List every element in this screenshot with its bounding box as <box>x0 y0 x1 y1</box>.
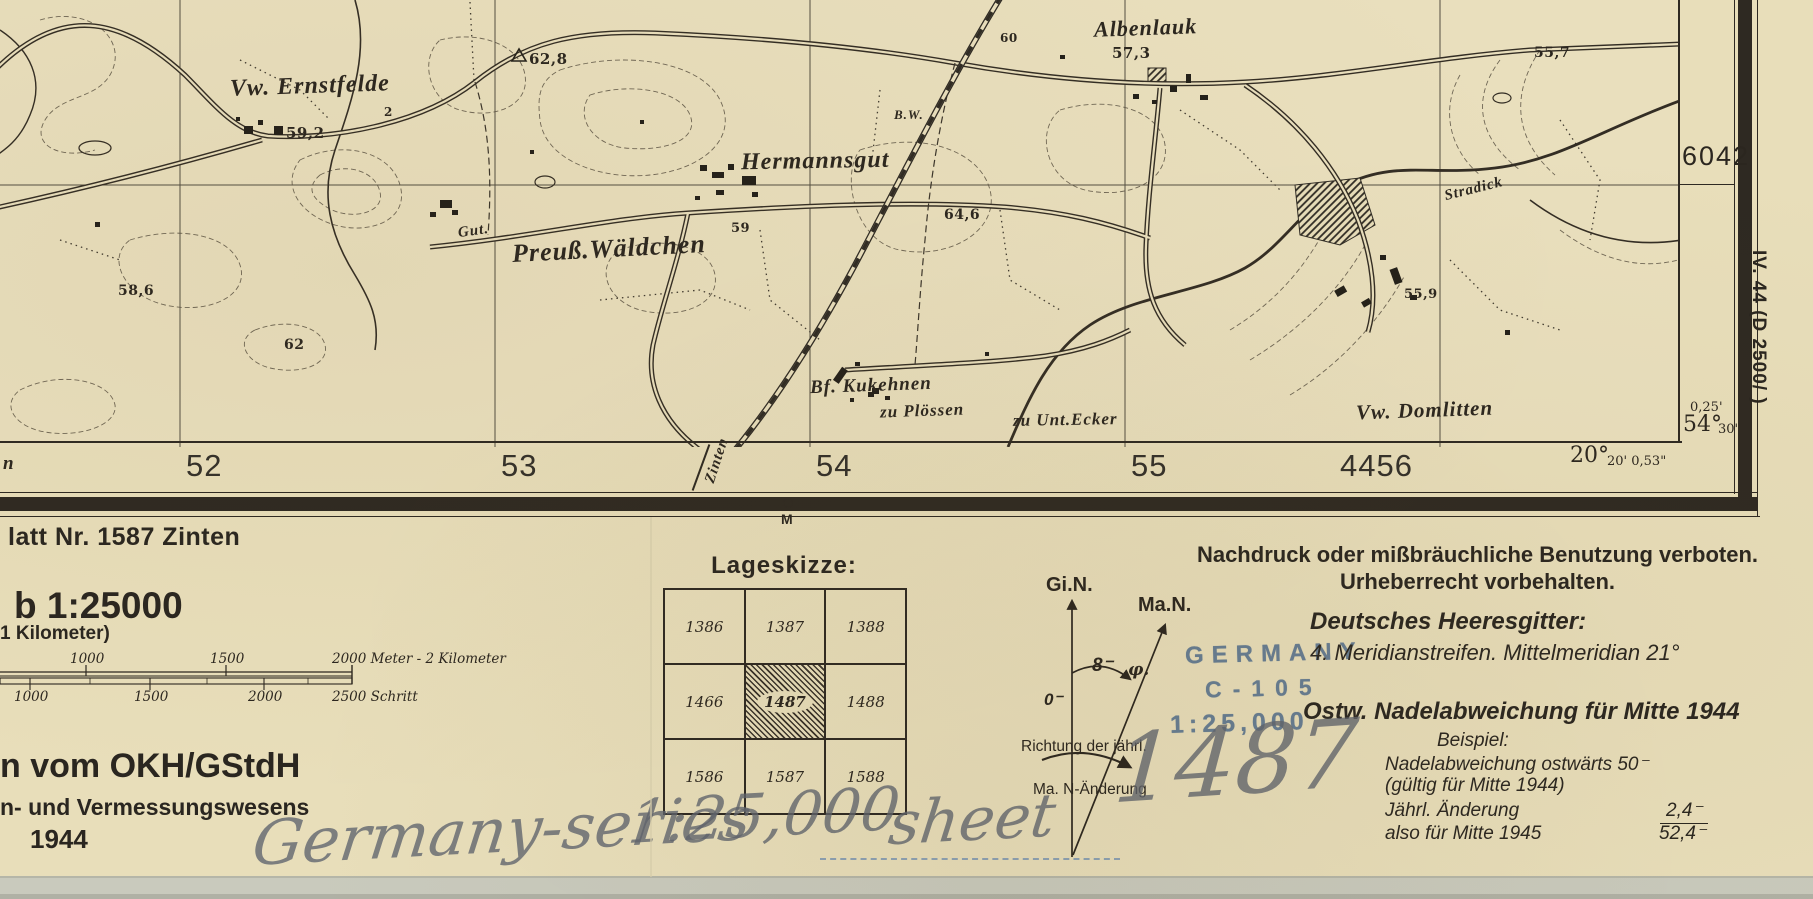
map-label: Hermannsgut <box>741 148 890 175</box>
lageskizze-title: Lageskizze: <box>663 553 905 579</box>
survey-marker-icon <box>783 498 793 508</box>
spot-height: 57,3 <box>1112 46 1151 61</box>
neatline-bottom <box>0 441 1682 443</box>
scale-tick-label: 1000 <box>14 689 49 705</box>
grid-number: 54 <box>816 450 852 481</box>
outer-border-bottom <box>0 516 1760 517</box>
map-label: zu Plössen <box>880 401 965 421</box>
sheet-index-cell: 1466 <box>664 664 745 739</box>
zero-label: 0⁻ <box>1044 690 1064 709</box>
margin-print-code: IV. 44 (D 2500/ ) <box>1747 250 1768 405</box>
grid-number: 4456 <box>1340 450 1413 481</box>
declination-note-title: Ostw. Nadelabweichung für Mitte 1944 <box>1303 698 1740 726</box>
sheet-index-cell: 1488 <box>825 664 906 739</box>
spot-height: 55,7 <box>1534 46 1570 60</box>
scale-tick-label: 1000 <box>70 651 105 667</box>
scale-tick-label: 1500 <box>210 651 245 667</box>
spot-height: 59 <box>731 222 750 235</box>
grid-number: 52 <box>186 450 222 481</box>
scale-unit-label: 2000 Meter - 2 Kilometer <box>331 651 507 667</box>
pencil-underline <box>820 858 1120 860</box>
map-label: zu Unt.Ecker <box>1013 410 1118 429</box>
annual-change-label: Jährl. Änderung <box>1385 800 1519 822</box>
map-label: Vw. Ernstfelde <box>230 71 391 101</box>
inner-border-right <box>1734 0 1735 494</box>
map-label: Bf. Kukehnen <box>810 374 932 397</box>
magnetic-north-label: Ma.N. <box>1138 594 1191 616</box>
scale-tick-label: 1500 <box>134 689 169 705</box>
heeresgitter-line: 4. Meridianstreifen. Mittelmeridian 21° <box>1310 640 1680 665</box>
kilometer-note: 1 Kilometer) <box>0 624 110 645</box>
marker-letter: M <box>781 512 793 527</box>
angle-value: 8⁻ <box>1092 655 1115 676</box>
corner-lon-min: 20' 0,53" <box>1607 455 1666 468</box>
paper-crease <box>650 517 652 877</box>
mid1945-value: 52,4⁻ <box>1655 823 1710 845</box>
map-label: B.W. <box>894 108 924 121</box>
grid-number: 53 <box>501 450 537 481</box>
scale-unit-label: 2500 Schritt <box>331 689 418 705</box>
copyright-line1: Nachdruck oder mißbräuchliche Benutzung … <box>1150 543 1805 567</box>
spot-height: 59,2 <box>286 126 325 141</box>
spot-height: 55,9 <box>1404 288 1438 301</box>
sheet-index-cell: 1386 <box>664 589 745 664</box>
corner-lat-min: 30' <box>1718 423 1738 436</box>
grid-north-label: Gi.N. <box>1046 574 1093 596</box>
thick-border-bottom <box>0 497 1757 511</box>
spot-height: 64,6 <box>944 208 980 222</box>
map-label: Gut. <box>457 222 490 241</box>
heeresgitter-title: Deutsches Heeresgitter: <box>1310 608 1586 636</box>
map-label-layer: Vw. ErnstfeldeHermannsgutGut.Preuß.Wäldc… <box>0 0 1678 447</box>
inner-border-bottom <box>0 492 1757 493</box>
example-label: Beispiel: <box>1437 730 1509 752</box>
corner-lat-deg: 54° <box>1683 414 1722 436</box>
spot-height: 62 <box>284 338 304 352</box>
edition-year: 1944 <box>30 825 88 854</box>
current-sheet-cell: 1487 <box>745 664 826 739</box>
adjacent-sheet-note: latt Nr. 1587 Zinten <box>8 524 240 552</box>
publisher-line: n vom OKH/GStdH <box>0 748 300 785</box>
map-label: Stradick <box>1443 175 1505 204</box>
scan-edge-shadow <box>0 894 1813 899</box>
neatline-right <box>1678 0 1680 443</box>
example-line1: Nadelabweichung ostwärts 50⁻ <box>1385 754 1649 776</box>
handwriting-scale: 1:25,000 <box>625 779 903 853</box>
scale-bar: 1000 1500 2000 Meter - 2 Kilometer 1000 … <box>0 648 520 706</box>
map-label: Albenlauk <box>1094 15 1198 41</box>
gridline-margin-stub <box>1678 184 1734 185</box>
spot-height: 2 <box>384 106 393 118</box>
handwriting-sheet-number: 1487 <box>1111 707 1361 819</box>
sheet-index-cell: 1387 <box>745 589 826 664</box>
grid-number: 55 <box>1131 450 1167 481</box>
handwriting-sheet-word: sheet <box>886 786 1059 855</box>
spot-height: 60 <box>1000 32 1018 44</box>
scanned-map-sheet: Vw. ErnstfeldeHermannsgutGut.Preuß.Wäldc… <box>0 0 1813 899</box>
northing-grid-label: 6042 <box>1682 143 1750 170</box>
scale-heading: b 1:25000 <box>14 586 183 627</box>
mid1945-label: also für Mitte 1945 <box>1385 823 1541 845</box>
angle-phi: φ. <box>1128 660 1149 680</box>
map-label: Vw. Domlitten <box>1356 398 1494 424</box>
spot-height: 58,6 <box>118 284 154 298</box>
corner-lon-deg: 20° <box>1570 445 1609 467</box>
sheet-index-cell: 1388 <box>825 589 906 664</box>
map-label: Preuß.Wäldchen <box>511 231 706 267</box>
spot-height: 62,8 <box>529 52 568 67</box>
copyright-line2: Urheberrecht vorbehalten. <box>1150 570 1805 594</box>
annual-change-value: 2,4⁻ <box>1660 800 1708 824</box>
scale-tick-label: 2000 <box>247 689 283 705</box>
edge-name-fragment: n <box>3 453 15 475</box>
example-line2: (gültig für Mitte 1944) <box>1385 775 1565 797</box>
